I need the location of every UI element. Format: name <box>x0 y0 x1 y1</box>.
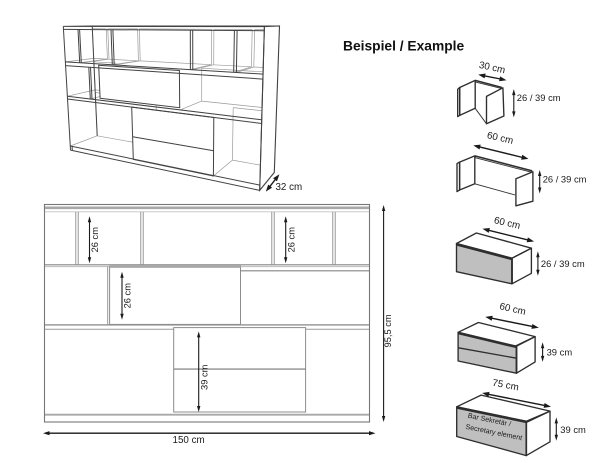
svg-text:26 cm: 26 cm <box>123 283 133 309</box>
svg-text:26 / 39 cm: 26 / 39 cm <box>543 173 587 184</box>
svg-text:26 cm: 26 cm <box>90 227 100 253</box>
svg-text:Beispiel / Example: Beispiel / Example <box>343 38 464 53</box>
svg-text:26 / 39 cm: 26 / 39 cm <box>517 92 561 103</box>
svg-text:150 cm: 150 cm <box>173 435 205 446</box>
svg-text:32 cm: 32 cm <box>275 182 302 193</box>
svg-text:95,5 cm: 95,5 cm <box>383 314 393 347</box>
svg-text:26 cm: 26 cm <box>286 227 296 253</box>
svg-text:39 cm: 39 cm <box>560 424 586 435</box>
svg-text:39 cm: 39 cm <box>547 347 573 358</box>
svg-text:26 / 39 cm: 26 / 39 cm <box>541 258 585 269</box>
svg-text:39 cm: 39 cm <box>199 364 209 390</box>
